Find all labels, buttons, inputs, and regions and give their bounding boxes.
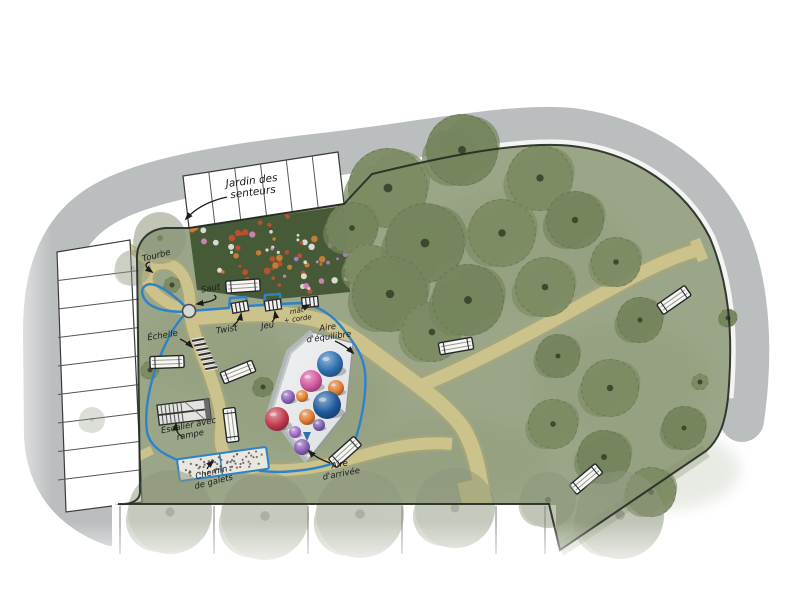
flower-dot (294, 257, 299, 262)
flower-dot (277, 251, 280, 254)
flower-dot (283, 275, 286, 278)
flower-dot (267, 223, 271, 227)
flower-dot (296, 238, 299, 241)
flower-dot (239, 265, 242, 268)
flower-dot (258, 220, 263, 225)
flower-dot (200, 227, 206, 233)
flower-dot (269, 230, 273, 234)
park-plan-canvas: Jardin dessenteursTourbeSautÉchelleTwist… (0, 0, 800, 600)
bench (226, 279, 261, 293)
flower-dot (264, 268, 271, 275)
flower-dot (230, 251, 233, 254)
flower-dot (311, 236, 318, 243)
flower-dot (265, 248, 268, 251)
flower-dot (326, 261, 330, 265)
bottom-fade (0, 522, 800, 600)
bench (150, 355, 184, 368)
flower-dot (235, 230, 241, 236)
flower-dot (256, 250, 261, 255)
flower-dot (319, 256, 326, 263)
flower-dot (242, 269, 248, 275)
flower-dot (301, 273, 307, 279)
play-item (302, 296, 319, 308)
flower-dot (278, 283, 282, 287)
path-flare-road (694, 248, 704, 252)
flower-dot (271, 267, 274, 270)
flower-dot (316, 260, 319, 263)
flower-dot (270, 247, 273, 250)
flower-dot (319, 263, 322, 266)
flower-dot (336, 257, 339, 260)
flower-dot (303, 283, 309, 289)
site-plan: Jardin dessenteursTourbeSautÉchelleTwist… (0, 0, 800, 600)
flower-dot (276, 255, 283, 262)
flower-dot (271, 276, 275, 280)
flower-dot (213, 240, 219, 246)
play-item (264, 299, 281, 311)
flower-dot (308, 244, 314, 250)
flower-dot (229, 235, 236, 242)
flower-dot (228, 244, 234, 250)
flower-dot (285, 214, 288, 217)
flower-dot (319, 278, 325, 284)
flower-dot (201, 238, 207, 244)
flower-dot (233, 253, 238, 258)
flower-dot (221, 270, 225, 274)
flower-dot (331, 277, 337, 283)
flower-dot (249, 231, 255, 237)
left-fade (0, 140, 52, 570)
play-item (231, 301, 248, 314)
path-hub-circle (183, 305, 196, 318)
flower-dot (242, 229, 248, 235)
flower-dot (287, 265, 292, 270)
flower-dot (285, 250, 289, 254)
flower-dot (303, 260, 307, 264)
flower-dot (297, 234, 300, 237)
flower-dot (277, 261, 282, 266)
flower-dot (235, 245, 240, 250)
flower-dot (270, 256, 276, 262)
flower-dot (272, 237, 275, 240)
flower-dot (300, 241, 304, 245)
